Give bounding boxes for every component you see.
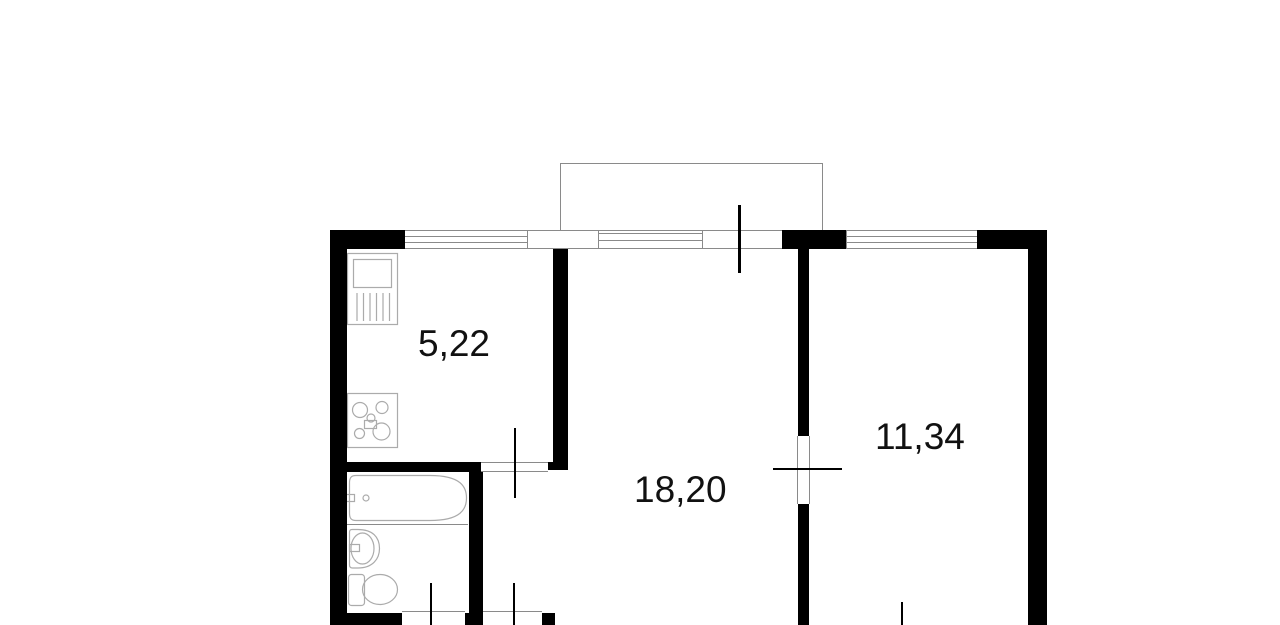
balcony-outline [822,163,823,230]
wall-living-bedroom-divider-lower [798,504,809,625]
balcony-door-mark [738,205,741,273]
toilet-icon [349,575,398,606]
facade-band-bottom-line [330,248,1047,249]
wall-outer-left [330,230,347,625]
living-room-area-label: 18,20 [634,471,727,509]
bedroom-bottom-door-mark [901,602,903,625]
window-balcony-end-tick [702,230,703,248]
window-bedroom-end-tick [846,230,847,248]
toilet-door-mark [430,583,432,625]
balcony-outline [560,163,561,230]
wall-living-bedroom-divider-upper [798,249,809,436]
balcony-outline [560,163,823,164]
wall-kitchen-living-divider-foot [548,462,568,470]
floor-plan: 5,22 18,20 11,34 [0,0,1280,625]
bedroom-door-jamb [809,436,810,504]
stove-icon [348,394,398,448]
wall-bottom-stub [542,613,555,625]
window-kitchen-glazing [405,242,527,243]
kitchen-door-mark [514,428,516,498]
window-balcony-glazing [598,233,702,234]
bedroom-area-label: 11,34 [875,418,965,456]
window-kitchen-glazing [405,236,527,237]
bathtub-icon [345,476,467,521]
window-bedroom-glazing [846,236,977,237]
toilet-door-opening [402,611,465,612]
window-balcony-end-tick [598,230,599,248]
bedroom-door-mark [773,468,842,470]
fixtures-layer [0,0,1280,625]
kitchen-sink-icon [348,254,398,325]
wall-outer-top-left-corner [330,230,405,249]
wall-outer-right [1028,230,1047,625]
bathroom-door-mark [513,583,515,625]
window-bedroom-glazing [846,242,977,243]
wall-outer-top-mid [782,230,846,249]
facade-band-top-line [330,230,1047,231]
wall-bathroom-right [469,472,483,613]
bathroom-partition-line [347,524,468,525]
wall-bottom-left [330,613,402,625]
washbasin-icon [350,530,380,569]
bedroom-door-jamb [797,436,798,504]
kitchen-area-label: 5,22 [418,325,490,363]
window-kitchen-end-tick [527,230,528,248]
wall-kitchen-living-divider [553,249,568,470]
wall-bottom-mid [465,613,483,625]
window-balcony-glazing [598,240,702,241]
wall-kitchen-bottom [347,462,481,472]
